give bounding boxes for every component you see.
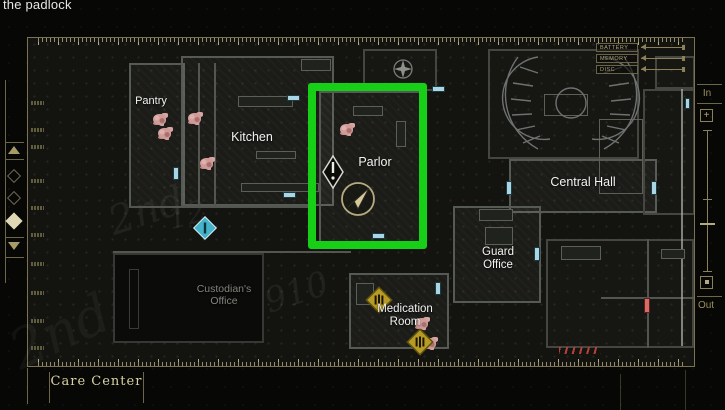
compass-rose-icon <box>392 58 414 80</box>
floor-down-button[interactable] <box>8 242 20 250</box>
legend-label: DISC <box>596 65 638 74</box>
legend-line <box>641 58 685 59</box>
ruler-mark <box>31 128 44 132</box>
legend-row: BATTERY <box>596 43 688 53</box>
floor-up-button[interactable] <box>8 146 20 154</box>
legend-row: MEMORY <box>596 54 688 64</box>
zoom-slider-handle[interactable] <box>700 223 715 225</box>
door-marker <box>283 192 296 198</box>
label-guard-office: Guard Office <box>468 246 528 272</box>
zoom-in-label: In <box>695 88 719 99</box>
furniture <box>256 151 296 159</box>
furniture <box>561 246 601 260</box>
zoom-out-button[interactable] <box>700 276 713 289</box>
wall <box>647 239 649 348</box>
divider <box>5 142 24 143</box>
zoom-out-label: Out <box>694 300 718 311</box>
ruler-mark <box>31 206 44 210</box>
divider <box>5 159 24 160</box>
game-map-screen: the padlock 2nd 2nd 12 O 1910 <box>0 0 725 410</box>
slider-cap <box>703 271 712 272</box>
floor-selector-rail <box>5 80 6 283</box>
divider <box>697 103 722 104</box>
furniture <box>485 227 513 245</box>
furniture <box>479 209 513 221</box>
zoom-in-button[interactable]: + <box>700 109 713 122</box>
map-canvas[interactable]: 2nd 12 O 1910 <box>28 38 694 366</box>
floor-diamond[interactable] <box>7 191 21 205</box>
legend-line-cap <box>682 67 685 72</box>
slider-tick <box>703 199 712 200</box>
ruler-mark <box>31 179 44 183</box>
door-marker <box>435 282 441 295</box>
label-central-hall: Central Hall <box>533 175 633 189</box>
door-marker <box>651 181 657 195</box>
door-marker <box>534 247 540 261</box>
furniture <box>301 59 331 71</box>
door-marker <box>173 167 179 180</box>
herb-marker <box>188 113 201 124</box>
area-title: Care Center <box>49 374 144 389</box>
label-medication-room: Medication Room <box>365 303 445 329</box>
furniture <box>661 249 685 259</box>
grid-line <box>620 374 621 410</box>
map-ruler-bottom <box>38 359 684 366</box>
locked-door-marker <box>644 298 650 313</box>
divider <box>5 237 24 238</box>
door-marker <box>685 98 690 109</box>
wall <box>129 206 311 208</box>
ruler-mark <box>31 262 44 266</box>
divider <box>5 257 24 258</box>
map-ruler-top <box>38 38 684 45</box>
furniture <box>129 269 139 329</box>
wall <box>198 63 200 208</box>
door-marker <box>372 233 385 239</box>
player-position-icon <box>336 177 380 221</box>
divider <box>697 84 722 85</box>
label-custodians-office: Custodian's Office <box>183 283 265 307</box>
zoom-slider-track[interactable] <box>707 130 708 272</box>
ruler-mark <box>31 145 44 149</box>
ruler-mark <box>31 101 44 105</box>
label-kitchen: Kitchen <box>212 130 292 144</box>
legend-line-cap <box>682 56 685 61</box>
supply-cabinet-icon <box>406 328 434 356</box>
legend-line <box>641 69 685 70</box>
legend-label: MEMORY <box>596 54 638 63</box>
label-pantry: Pantry <box>121 95 181 108</box>
herb-marker <box>200 158 213 169</box>
zoom-out-glyph <box>705 280 709 284</box>
room-pantry <box>129 63 185 208</box>
ruler-mark <box>31 291 44 295</box>
red-hatch-marks <box>559 347 601 354</box>
grid-line <box>685 370 686 410</box>
legend-line <box>641 47 685 48</box>
floor-diamond[interactable] <box>7 169 21 183</box>
door-marker <box>287 95 300 101</box>
divider <box>27 368 28 404</box>
wall-outer <box>681 89 683 346</box>
subtitle-caption: the padlock <box>3 0 72 12</box>
label-parlor: Parlor <box>335 155 415 169</box>
legend-label: BATTERY <box>596 43 638 52</box>
herb-marker <box>158 128 171 139</box>
wall <box>113 251 351 253</box>
legend-line-cap <box>682 45 685 50</box>
furniture <box>238 96 293 107</box>
ruler-mark <box>31 346 44 350</box>
herb-marker <box>340 124 353 135</box>
ruler-mark <box>31 319 44 323</box>
ruler-mark <box>31 233 44 237</box>
door-marker <box>432 86 445 92</box>
herb-marker <box>153 114 166 125</box>
legend-row: DISC <box>596 65 688 75</box>
door-marker <box>506 181 512 195</box>
divider <box>697 296 722 297</box>
floor-diamond-current[interactable] <box>6 213 23 230</box>
teal-diamond-icon <box>192 215 218 241</box>
